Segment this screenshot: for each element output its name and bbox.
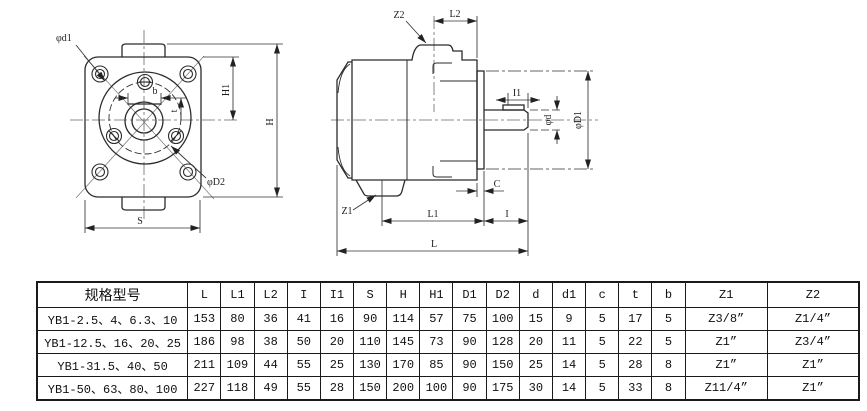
spec-cell: 8 [652, 354, 685, 377]
spec-cell: 211 [188, 354, 221, 377]
spec-cell: 118 [221, 377, 254, 401]
spec-cell: Z1” [767, 354, 859, 377]
spec-cell: 5 [586, 354, 619, 377]
spec-cell: 20 [320, 331, 353, 354]
spec-cell: 20 [519, 331, 552, 354]
spec-cell: 175 [486, 377, 519, 401]
spec-cell: 28 [320, 377, 353, 401]
spec-header-cell: c [586, 282, 619, 308]
spec-header-cell: H1 [420, 282, 453, 308]
spec-cell: Z1” [767, 377, 859, 401]
spec-cell: 100 [420, 377, 453, 401]
spec-cell: 41 [287, 308, 320, 331]
spec-header-cell: D2 [486, 282, 519, 308]
spec-cell: 5 [652, 308, 685, 331]
spec-header-cell: b [652, 282, 685, 308]
spec-cell: 11 [552, 331, 585, 354]
spec-cell: 90 [453, 377, 486, 401]
spec-cell: 80 [221, 308, 254, 331]
spec-header-cell: I [287, 282, 320, 308]
spec-cell: 57 [420, 308, 453, 331]
spec-cell: Z1/4” [767, 308, 859, 331]
spec-cell: 227 [188, 377, 221, 401]
spec-cell: 14 [552, 354, 585, 377]
spec-cell: 85 [420, 354, 453, 377]
spec-cell: 186 [188, 331, 221, 354]
label-z2: Z2 [393, 10, 404, 21]
label-phi-d1: φd1 [56, 33, 72, 44]
label-b: b [153, 86, 158, 97]
spec-cell: 170 [387, 354, 420, 377]
label-t: t [169, 109, 180, 112]
spec-cell: 36 [254, 308, 287, 331]
spec-cell: 44 [254, 354, 287, 377]
spec-cell: Z1” [685, 331, 767, 354]
side-dimensions [337, 16, 594, 256]
label-h1: H1 [221, 84, 232, 96]
spec-header-cell: S [354, 282, 387, 308]
spec-row: YB1-2.5、4、6.3、10153803641169011457751001… [37, 308, 859, 331]
spec-header-cell: t [619, 282, 652, 308]
label-l1: L1 [427, 209, 438, 220]
spec-cell: 38 [254, 331, 287, 354]
spec-cell: 200 [387, 377, 420, 401]
label-s: S [137, 216, 143, 227]
label-phi-d1-big: φD1 [573, 111, 584, 129]
spec-table-container: 规格型号LL1L2II1SHH1D1D2dd1ctbZ1Z2 YB1-2.5、4… [36, 281, 862, 401]
spec-row: YB1-31.5、40、5021110944552513017085901502… [37, 354, 859, 377]
spec-header-row: 规格型号LL1L2II1SHH1D1D2dd1ctbZ1Z2 [37, 282, 859, 308]
spec-header-cell: Z1 [685, 282, 767, 308]
label-i1: I1 [513, 88, 521, 99]
spec-cell: 90 [453, 354, 486, 377]
spec-cell: 9 [552, 308, 585, 331]
spec-cell: Z1” [685, 354, 767, 377]
spec-cell: 98 [221, 331, 254, 354]
bolt-circle [109, 82, 181, 154]
spec-cell: 22 [619, 331, 652, 354]
side-view: Z2 L2 I1 φd φD1 C Z1 L1 I L [331, 9, 598, 256]
spec-cell: 33 [619, 377, 652, 401]
spec-cell: 5 [586, 331, 619, 354]
label-h: H [265, 118, 276, 125]
spec-cell: 109 [221, 354, 254, 377]
spec-header-cell: Z2 [767, 282, 859, 308]
spec-header-cell: L1 [221, 282, 254, 308]
label-l: L [431, 239, 437, 250]
label-l2: L2 [449, 9, 460, 20]
front-view: φd1 b t H1 H φD2 S [56, 30, 283, 233]
spec-cell: 25 [519, 354, 552, 377]
spec-cell: 90 [354, 308, 387, 331]
spec-cell: 110 [354, 331, 387, 354]
spec-cell: 28 [619, 354, 652, 377]
side-center-lines [331, 16, 598, 120]
spec-row: YB1-50、63、80、100227118495528150200100901… [37, 377, 859, 401]
technical-drawing-container: φd1 b t H1 H φD2 S [0, 0, 867, 272]
label-c: C [494, 179, 501, 190]
spec-cell: 15 [519, 308, 552, 331]
spec-header-cell: d [519, 282, 552, 308]
spec-cell: 150 [354, 377, 387, 401]
spec-row: YB1-12.5、16、20、2518698385020110145739012… [37, 331, 859, 354]
spec-header-cell: 规格型号 [37, 282, 188, 308]
spec-cell: 25 [320, 354, 353, 377]
spec-cell: 145 [387, 331, 420, 354]
spec-header-cell: I1 [320, 282, 353, 308]
spec-cell: 153 [188, 308, 221, 331]
spec-cell: 100 [486, 308, 519, 331]
spec-cell: 16 [320, 308, 353, 331]
spec-cell: 90 [453, 331, 486, 354]
spec-header-cell: L [188, 282, 221, 308]
technical-drawing: φd1 b t H1 H φD2 S [0, 0, 867, 272]
spec-cell: Z3/8” [685, 308, 767, 331]
spec-cell: YB1-50、63、80、100 [37, 377, 188, 401]
label-i: I [505, 209, 508, 220]
spec-cell: 5 [586, 308, 619, 331]
label-phi-d: φd [543, 115, 554, 126]
spec-cell: YB1-12.5、16、20、25 [37, 331, 188, 354]
spec-header-cell: d1 [552, 282, 585, 308]
spec-cell: YB1-31.5、40、50 [37, 354, 188, 377]
spec-cell: 49 [254, 377, 287, 401]
label-phi-d2-big: φD2 [207, 177, 225, 188]
spec-cell: 75 [453, 308, 486, 331]
spec-cell: 5 [586, 377, 619, 401]
spec-cell: YB1-2.5、4、6.3、10 [37, 308, 188, 331]
spec-header-cell: H [387, 282, 420, 308]
spec-header-cell: L2 [254, 282, 287, 308]
spec-table-body: YB1-2.5、4、6.3、10153803641169011457751001… [37, 308, 859, 401]
spec-cell: 14 [552, 377, 585, 401]
label-z1: Z1 [341, 206, 352, 217]
spec-cell: 55 [287, 354, 320, 377]
spec-cell: Z3/4” [767, 331, 859, 354]
spec-cell: 30 [519, 377, 552, 401]
spec-cell: 128 [486, 331, 519, 354]
spec-cell: 8 [652, 377, 685, 401]
spec-cell: 73 [420, 331, 453, 354]
spec-cell: 114 [387, 308, 420, 331]
spec-cell: 17 [619, 308, 652, 331]
spec-cell: 5 [652, 331, 685, 354]
spec-header-cell: D1 [453, 282, 486, 308]
spec-cell: 130 [354, 354, 387, 377]
spec-table: 规格型号LL1L2II1SHH1D1D2dd1ctbZ1Z2 YB1-2.5、4… [36, 281, 860, 401]
spec-cell: 55 [287, 377, 320, 401]
pump-dimension-sheet: φd1 b t H1 H φD2 S [0, 0, 867, 411]
front-outline [85, 44, 201, 210]
spec-cell: 150 [486, 354, 519, 377]
spec-cell: 50 [287, 331, 320, 354]
spec-cell: Z11/4” [685, 377, 767, 401]
